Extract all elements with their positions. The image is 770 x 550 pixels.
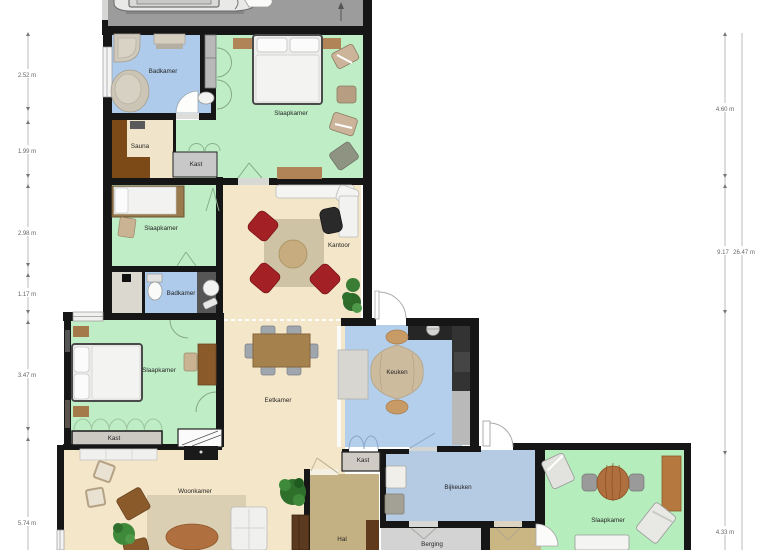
svg-text:Eetkamer: Eetkamer [265,397,292,404]
svg-text:2.52 m: 2.52 m [18,73,36,79]
svg-text:3.47 m: 3.47 m [18,373,36,379]
svg-text:Keuken: Keuken [386,369,408,376]
svg-text:Hal: Hal [337,536,346,543]
svg-text:Sauna: Sauna [131,143,150,150]
svg-text:Kast: Kast [357,457,370,464]
svg-text:Slaapkamer: Slaapkamer [144,225,178,232]
svg-text:5.74 m: 5.74 m [18,521,36,527]
svg-text:Kast: Kast [190,161,203,168]
svg-text:26.47 m: 26.47 m [733,250,755,256]
svg-text:Woonkamer: Woonkamer [178,488,212,495]
svg-text:1.99 m: 1.99 m [18,149,36,155]
svg-text:4.60 m: 4.60 m [716,107,734,113]
svg-text:Slaapkamer: Slaapkamer [591,517,625,524]
svg-text:Kast: Kast [108,435,121,442]
svg-text:9.17: 9.17 [717,250,729,256]
svg-text:Badkamer: Badkamer [167,290,196,297]
svg-text:Kantoor: Kantoor [328,242,350,249]
svg-text:Bijkeuken: Bijkeuken [444,484,472,491]
svg-text:1.17 m: 1.17 m [18,292,36,298]
svg-text:Berging: Berging [421,541,443,548]
svg-text:Slaapkamer: Slaapkamer [142,367,176,374]
svg-text:Slaapkamer: Slaapkamer [274,110,308,117]
svg-text:4.33 m: 4.33 m [716,530,734,536]
svg-text:2.98 m: 2.98 m [18,231,36,237]
svg-text:Badkamer: Badkamer [149,68,178,75]
